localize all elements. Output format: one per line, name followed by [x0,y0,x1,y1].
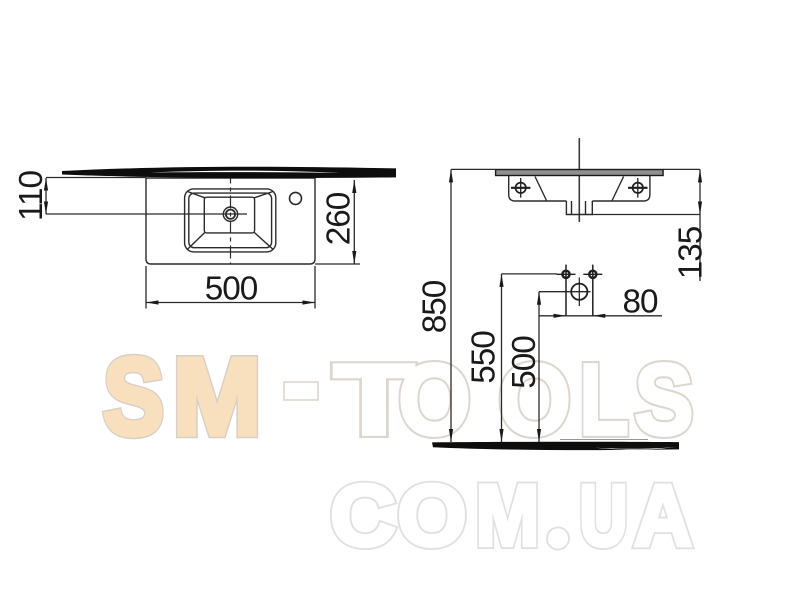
svg-text:S: S [635,344,694,455]
svg-text:S: S [103,336,163,458]
svg-text:135: 135 [672,226,709,279]
svg-text:500: 500 [205,271,258,308]
svg-text:110: 110 [13,170,50,221]
svg-text:U: U [579,468,627,564]
svg-text:O: O [398,345,470,456]
svg-text:M: M [173,336,261,458]
svg-text:550: 550 [465,331,502,384]
svg-text:500: 500 [506,336,543,389]
svg-text:M: M [476,468,540,564]
svg-text:80: 80 [622,284,658,321]
svg-text:C: C [330,467,395,564]
svg-text:A: A [634,467,692,563]
svg-text:850: 850 [416,280,453,333]
svg-text:260: 260 [320,192,357,245]
svg-text:O: O [398,468,467,564]
